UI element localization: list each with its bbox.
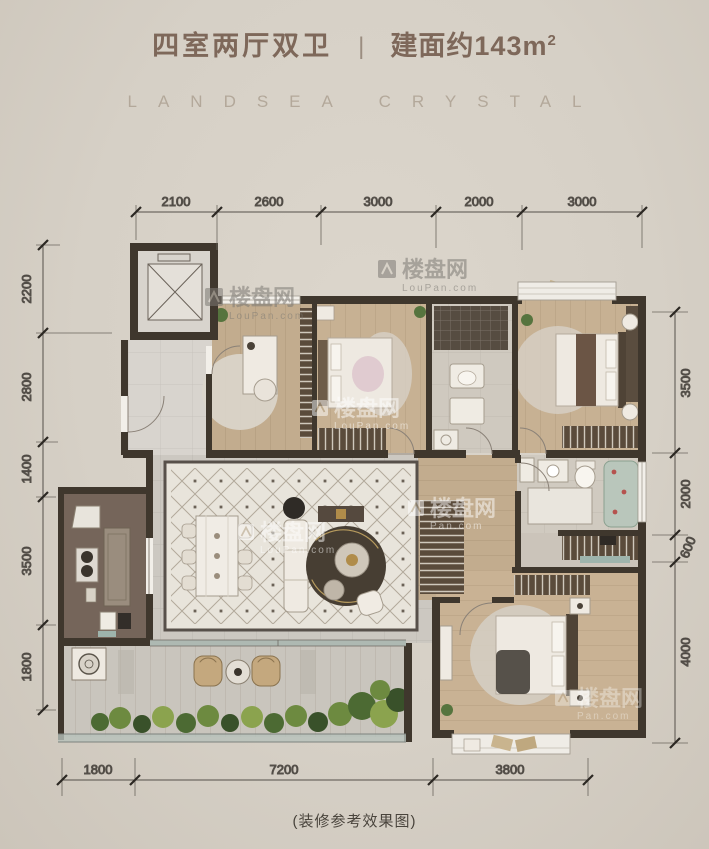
- niche-closet: [562, 533, 640, 563]
- svg-text:楼盘网: 楼盘网: [577, 686, 643, 711]
- elevator: [138, 251, 210, 332]
- svg-text:2800: 2800: [19, 373, 34, 402]
- svg-text:LouPan.com: LouPan.com: [334, 421, 410, 432]
- svg-text:4000: 4000: [678, 638, 693, 667]
- svg-text:1800: 1800: [84, 762, 113, 777]
- svg-text:楼盘网: 楼盘网: [229, 285, 295, 310]
- svg-text:7200: 7200: [270, 762, 299, 777]
- svg-text:1800: 1800: [19, 653, 34, 682]
- svg-text:Pan.com: Pan.com: [577, 711, 630, 722]
- dimension-top: 2100 2600 3000 2000 3000: [131, 194, 647, 250]
- svg-text:2200: 2200: [19, 275, 34, 304]
- dimension-bottom: 1800 7200 3800: [57, 758, 593, 796]
- caption: (装修参考效果图): [0, 810, 709, 831]
- svg-text:2600: 2600: [255, 194, 284, 209]
- svg-text:3500: 3500: [678, 369, 693, 398]
- svg-text:3500: 3500: [19, 547, 34, 576]
- svg-text:楼盘网: 楼盘网: [334, 396, 400, 421]
- washer: [72, 648, 106, 680]
- svg-text:3800: 3800: [496, 762, 525, 777]
- svg-text:楼盘网: 楼盘网: [260, 520, 326, 545]
- svg-text:2000: 2000: [678, 480, 693, 509]
- svg-text:3000: 3000: [364, 194, 393, 209]
- dimension-right: 3500 2000 600 4000: [652, 307, 699, 748]
- plan-area: 建面约143m2: [390, 24, 556, 63]
- area-text: 建面约143m: [390, 31, 547, 61]
- area-superscript: 2: [547, 32, 556, 49]
- svg-text:2100: 2100: [162, 194, 191, 209]
- svg-text:3000: 3000: [568, 194, 597, 209]
- title-separator: |: [358, 33, 364, 61]
- brand-watermark: LANDSEA CRYSTAL: [0, 92, 709, 112]
- svg-text:Pan.com: Pan.com: [430, 521, 483, 532]
- plan-header: 四室两厅双卫 | 建面约143m2: [0, 24, 709, 63]
- plan-title: 四室两厅双卫: [152, 24, 332, 63]
- floorplan-page: 四室两厅双卫 | 建面约143m2 LANDSEA CRYSTAL: [0, 0, 709, 849]
- svg-text:LouPan.com: LouPan.com: [402, 283, 478, 294]
- watermark-grey-2: 楼盘网 LouPan.com: [378, 257, 478, 294]
- svg-text:楼盘网: 楼盘网: [430, 496, 496, 521]
- svg-text:1400: 1400: [19, 455, 34, 484]
- svg-text:LouPan.com: LouPan.com: [260, 545, 336, 556]
- svg-text:LouPan.com: LouPan.com: [229, 311, 305, 322]
- svg-text:2000: 2000: [465, 194, 494, 209]
- floor-plan-drawing: 2100 2600 3000 2000 3000 2200 2800 1400 …: [0, 0, 709, 849]
- svg-text:楼盘网: 楼盘网: [402, 257, 468, 282]
- svg-text:600: 600: [677, 534, 699, 560]
